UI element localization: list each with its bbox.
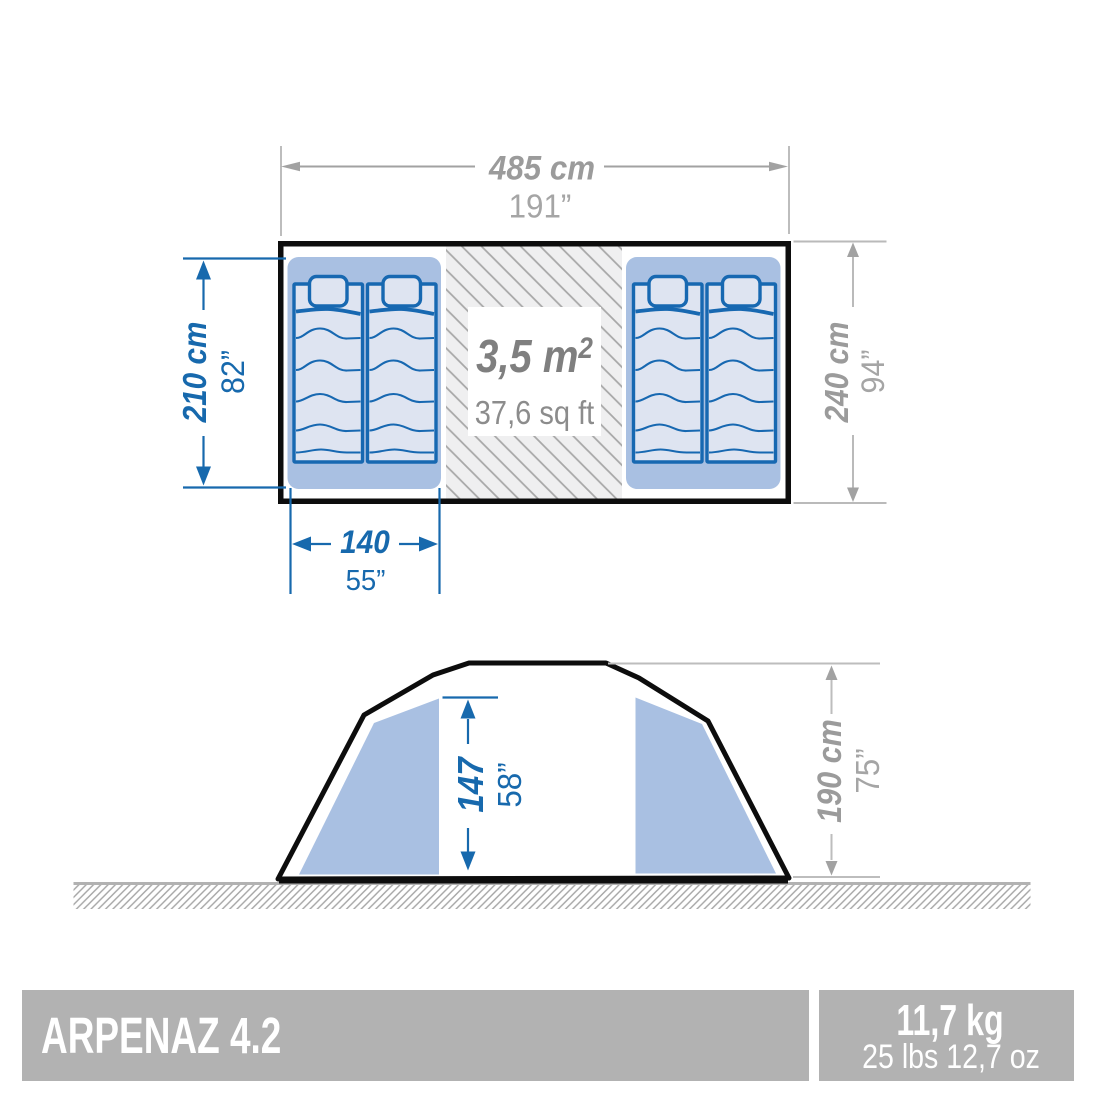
svg-text:82”: 82” [215,350,251,394]
svg-text:3,5 m2: 3,5 m2 [476,331,593,382]
svg-text:147: 147 [452,756,492,813]
svg-text:58”: 58” [491,762,528,807]
svg-text:ARPENAZ 4.2: ARPENAZ 4.2 [41,1008,281,1064]
svg-text:485 cm: 485 cm [488,148,595,187]
svg-text:191”: 191” [509,188,572,225]
svg-text:240 cm: 240 cm [819,322,856,424]
svg-text:25 lbs 12,7 oz: 25 lbs 12,7 oz [862,1038,1040,1076]
svg-text:75”: 75” [849,748,886,793]
svg-text:210 cm: 210 cm [177,322,214,424]
svg-text:190 cm: 190 cm [811,719,849,823]
svg-text:140: 140 [340,524,390,560]
svg-text:94”: 94” [855,350,891,394]
svg-text:55”: 55” [346,563,386,596]
svg-text:37,6 sq ft: 37,6 sq ft [475,394,595,431]
